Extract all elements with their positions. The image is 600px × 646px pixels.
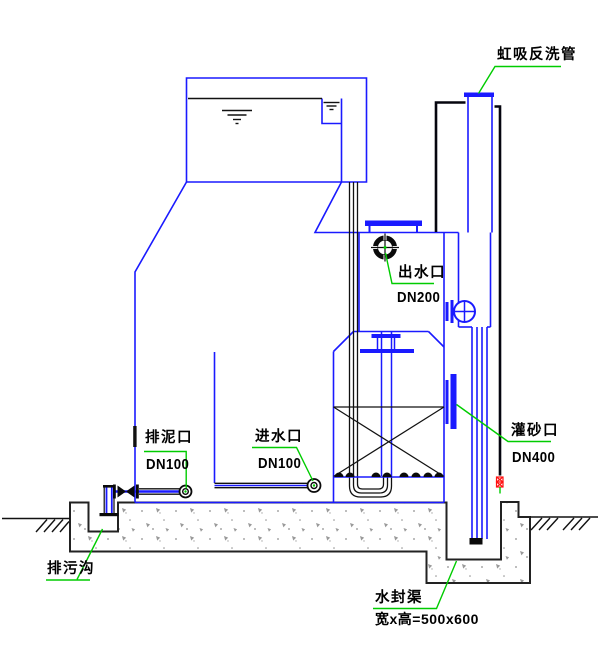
label-inlet-size: DN100	[258, 456, 301, 471]
outlet-valve	[446, 300, 476, 323]
ground-line-right	[530, 517, 598, 530]
head-tank	[187, 78, 367, 182]
outlet-box-top-flange	[365, 221, 422, 233]
pipe-foot	[470, 538, 483, 545]
label-sludge-size: DN100	[146, 457, 189, 472]
label-sludge-name: 排泥口	[145, 431, 193, 446]
concrete-foundation	[70, 502, 530, 583]
leader-siphon	[479, 67, 562, 94]
drawing-linework	[0, 0, 600, 646]
sand-port-flange	[446, 374, 457, 429]
filter-nozzles	[335, 473, 444, 478]
engineering-drawing-canvas: 虹吸反洗管 出水口 DN200 排泥口 DN100 进水口 DN100 灌砂口 …	[0, 0, 600, 646]
label-sand-size: DN400	[512, 450, 555, 465]
water-level	[188, 99, 340, 124]
label-outlet-size: DN200	[397, 290, 440, 305]
label-outlet-name: 出水口	[398, 266, 446, 281]
outlet-port-symbol	[371, 234, 399, 262]
red-drain-mark	[497, 477, 504, 487]
label-seal-name: 水封渠	[375, 591, 423, 606]
label-siphon-pipe: 虹吸反洗管	[497, 48, 577, 63]
label-sand-name: 灌砂口	[511, 424, 559, 439]
wall-mark	[133, 426, 136, 447]
label-ditch-name: 排污沟	[47, 562, 95, 577]
inlet-port-symbol	[308, 479, 321, 492]
label-inlet-name: 进水口	[255, 430, 303, 445]
label-seal-dim: 宽x高=500x600	[375, 612, 479, 626]
inlet-pipe	[215, 479, 321, 492]
ground-line-left	[2, 519, 70, 533]
